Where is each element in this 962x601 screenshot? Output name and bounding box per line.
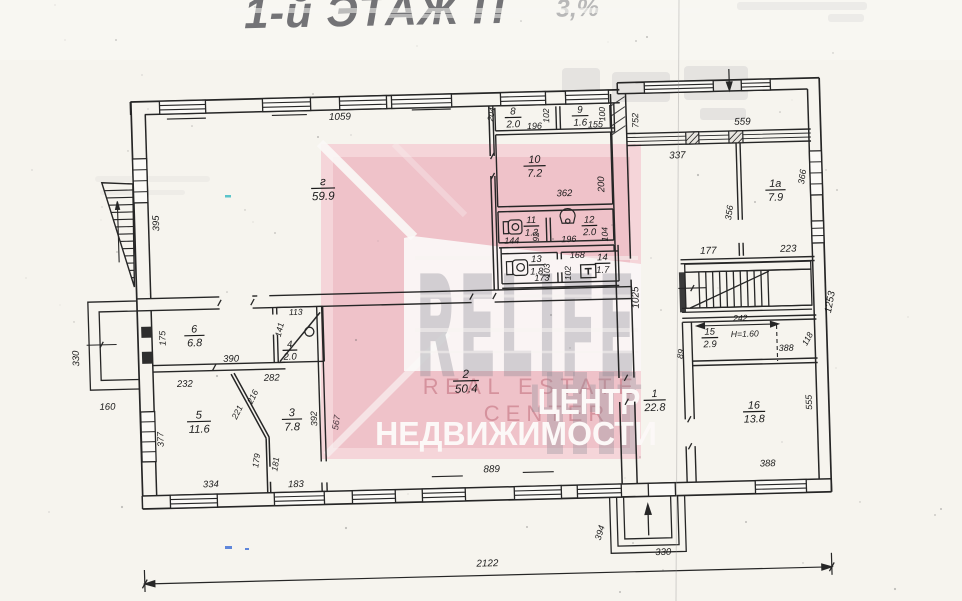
svg-text:Н=1.60: Н=1.60 [731,328,759,339]
svg-text:200: 200 [596,175,608,193]
svg-text:175: 175 [157,330,167,346]
svg-text:168: 168 [570,250,585,260]
svg-text:377: 377 [155,431,165,447]
svg-text:555: 555 [804,394,814,410]
svg-text:388: 388 [779,343,794,353]
svg-text:50.4: 50.4 [455,382,479,396]
svg-text:9: 9 [577,105,583,116]
svg-text:100: 100 [597,107,607,122]
svg-text:144: 144 [504,235,519,245]
svg-text:356: 356 [723,204,735,220]
svg-text:390: 390 [223,353,240,364]
svg-text:179: 179 [250,453,262,469]
svg-text:181: 181 [269,456,281,472]
svg-text:395: 395 [151,215,162,232]
svg-text:1059: 1059 [329,111,352,123]
svg-text:4: 4 [287,339,293,350]
svg-text:7.9: 7.9 [768,192,783,204]
svg-text:11: 11 [526,215,536,226]
svg-text:392: 392 [309,411,319,426]
svg-text:89: 89 [675,348,686,359]
svg-text:12: 12 [584,214,596,225]
svg-text:59.9: 59.9 [312,190,336,204]
svg-text:1: 1 [651,388,657,400]
svg-text:г: г [320,175,326,188]
svg-text:242: 242 [732,313,748,323]
svg-text:177: 177 [700,245,717,256]
svg-text:196: 196 [561,234,576,244]
svg-text:6: 6 [191,323,197,335]
svg-text:1025: 1025 [630,286,642,309]
svg-text:223: 223 [779,243,797,254]
svg-text:2122: 2122 [475,558,499,570]
svg-text:104: 104 [599,227,609,242]
svg-text:14: 14 [597,252,608,263]
svg-text:183: 183 [288,479,305,490]
svg-text:196: 196 [527,121,542,131]
svg-text:337: 337 [669,150,686,161]
svg-text:НЕДВИЖИМОСТИ: НЕДВИЖИМОСТИ [375,416,657,453]
svg-text:1.6: 1.6 [573,117,588,128]
svg-text:15: 15 [704,327,716,338]
svg-text:889: 889 [483,464,500,475]
svg-text:330: 330 [71,350,82,367]
svg-text:2.9: 2.9 [702,339,717,350]
svg-text:102: 102 [541,108,551,123]
svg-text:8: 8 [510,106,516,117]
svg-text:334: 334 [203,479,219,490]
svg-text:559: 559 [734,116,751,127]
svg-text:7.8: 7.8 [284,421,301,433]
svg-text:232: 232 [176,379,194,390]
svg-text:7.2: 7.2 [527,168,542,180]
svg-text:10: 10 [528,154,540,166]
svg-text:366: 366 [796,169,808,185]
svg-text:102: 102 [563,266,573,281]
svg-text:2.0: 2.0 [282,351,297,362]
svg-text:282: 282 [263,372,281,383]
svg-text:160: 160 [99,402,116,413]
svg-text:3: 3 [289,407,296,419]
svg-text:22.8: 22.8 [643,402,665,415]
svg-text:13.8: 13.8 [744,413,765,426]
svg-text:1.7: 1.7 [596,265,610,276]
svg-text:92: 92 [531,232,541,242]
svg-text:5: 5 [196,409,203,421]
svg-text:2: 2 [461,368,469,381]
svg-text:752: 752 [630,113,640,128]
svg-text:103: 103 [542,263,552,278]
svg-text:1а: 1а [769,178,781,190]
svg-text:2.0: 2.0 [582,227,597,238]
svg-text:2.0: 2.0 [505,119,521,130]
svg-text:362: 362 [556,188,573,199]
svg-text:6.8: 6.8 [187,337,202,349]
svg-text:16: 16 [748,399,760,411]
svg-text:388: 388 [760,458,777,469]
svg-text:330: 330 [655,547,672,558]
svg-text:13: 13 [531,254,543,265]
svg-text:113: 113 [289,307,303,317]
svg-text:1-й ЭТАЖ П: 1-й ЭТАЖ П [243,0,506,38]
svg-text:11.6: 11.6 [189,423,211,436]
